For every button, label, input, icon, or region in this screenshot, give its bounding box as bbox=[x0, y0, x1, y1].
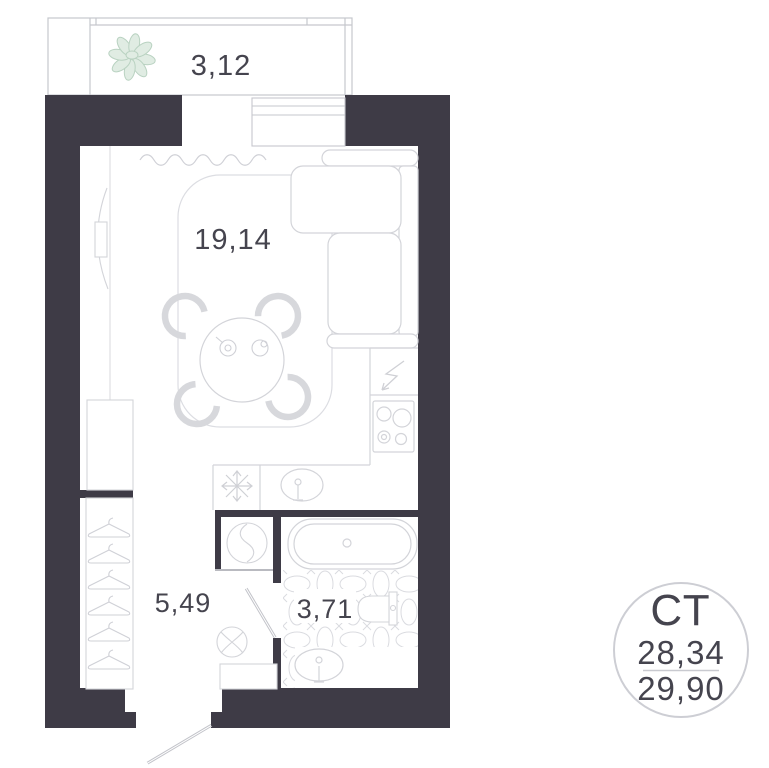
bathroom-door-leaf bbox=[245, 588, 276, 638]
bathtub-icon bbox=[288, 519, 417, 569]
door-jamb-left bbox=[125, 712, 136, 728]
sofa-back-right bbox=[399, 166, 418, 336]
wall-left bbox=[45, 95, 80, 728]
sofa-back-top bbox=[322, 150, 418, 166]
power-bolt-icon bbox=[382, 361, 404, 390]
badge-type-label: СТ bbox=[650, 586, 711, 635]
chair-top-left bbox=[165, 296, 205, 336]
curtain-line bbox=[140, 155, 266, 166]
window bbox=[252, 98, 345, 146]
kitchen-sink-icon bbox=[281, 469, 323, 501]
fridge-snowflake-icon bbox=[222, 471, 252, 501]
stove-icon bbox=[373, 401, 414, 452]
washer-niche-wall bbox=[215, 517, 221, 571]
entry-door-leaf bbox=[147, 724, 212, 764]
hall-area-label: 5,49 bbox=[155, 588, 212, 618]
washing-machine-icon bbox=[227, 523, 267, 563]
sofa-seat-top bbox=[291, 166, 401, 233]
wall-right bbox=[418, 95, 450, 728]
living-area-label: 19,14 bbox=[194, 224, 272, 256]
badge-area-bottom: 29,90 bbox=[637, 670, 725, 707]
dining-set bbox=[165, 296, 308, 424]
tv-cabinet bbox=[87, 400, 133, 490]
badge-area-top: 28,34 bbox=[637, 634, 725, 671]
wall-bottom-left bbox=[45, 688, 125, 728]
floor-plan: 3,12 bbox=[0, 0, 769, 768]
floor-plan-page: 3,12 bbox=[0, 0, 769, 768]
area-badge: СТ 28,34 29,90 bbox=[614, 583, 748, 717]
wardrobe bbox=[86, 498, 133, 689]
wardrobe-divider-wall bbox=[80, 490, 133, 498]
sofa-seat-right bbox=[328, 233, 401, 334]
tv-icon bbox=[95, 188, 108, 289]
door-jamb-right bbox=[211, 712, 222, 728]
dining-table bbox=[200, 318, 284, 402]
sofa-armrest bbox=[327, 334, 418, 348]
entry-cabinet bbox=[220, 664, 277, 689]
bath-partition-upper bbox=[273, 517, 281, 583]
bathroom-area-label: 3,71 bbox=[297, 594, 354, 624]
bathroom-wall-top bbox=[215, 510, 418, 517]
sofa bbox=[291, 150, 418, 348]
stool-icon bbox=[217, 627, 247, 657]
balcony-area-label: 3,12 bbox=[191, 50, 251, 82]
wall-bottom-right bbox=[222, 688, 450, 728]
bathroom-sink-icon bbox=[295, 649, 343, 682]
